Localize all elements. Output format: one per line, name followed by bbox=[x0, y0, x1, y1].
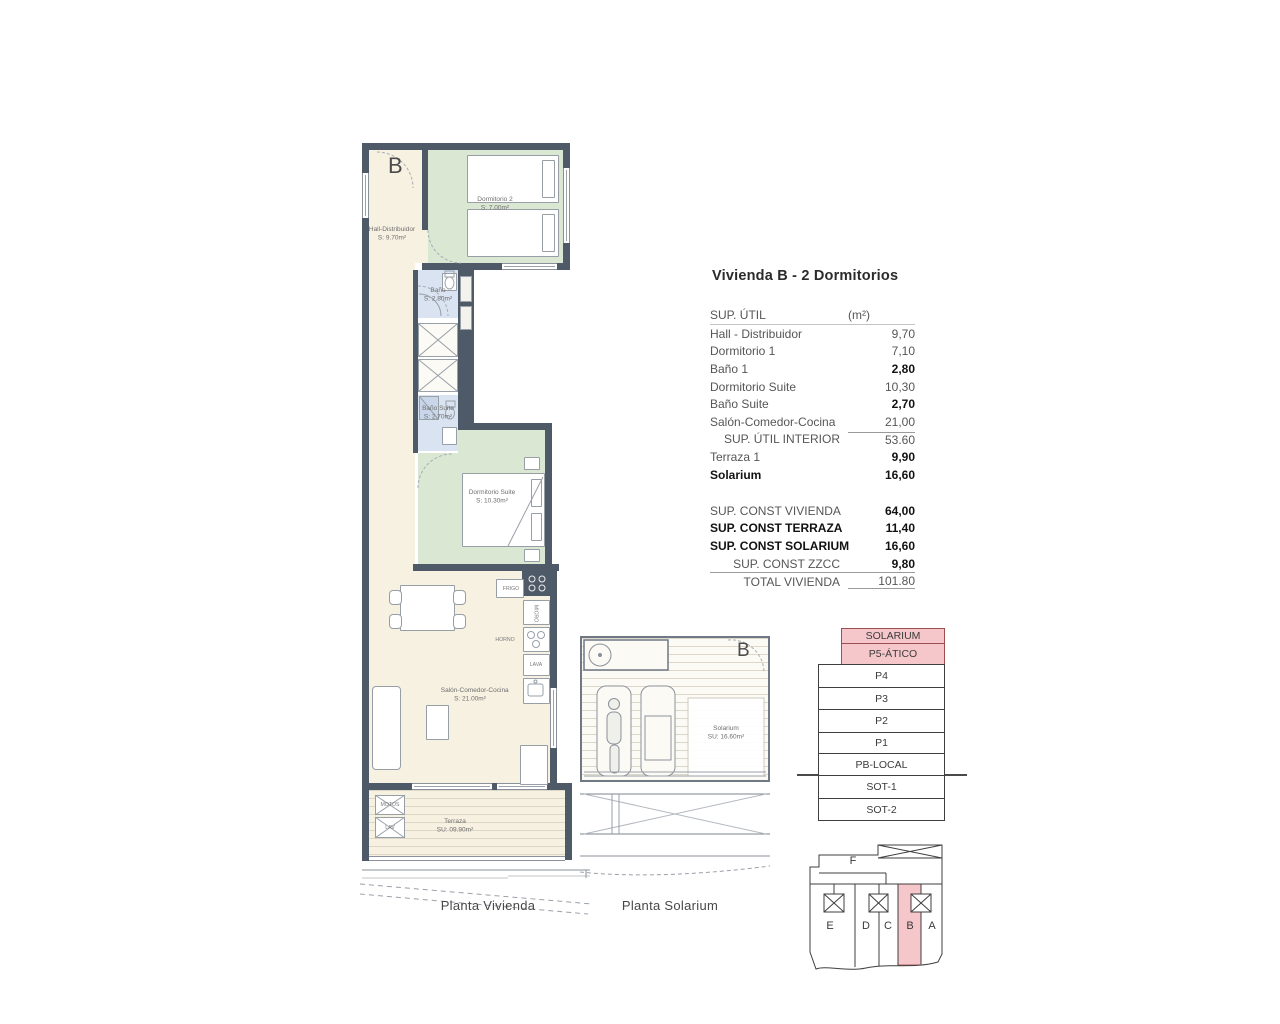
coffee-table bbox=[426, 705, 449, 740]
wall-suite-bottom bbox=[413, 564, 559, 571]
window-dorm2-bottom bbox=[502, 263, 557, 270]
label-motos: MOTOS bbox=[377, 802, 403, 808]
table-row: SUP. CONST ZZCC9,80 bbox=[710, 555, 915, 573]
room-name: Solarium bbox=[697, 724, 756, 732]
label-dormitorio-suite: Dormitorio Suite S: 10.30m² bbox=[463, 488, 522, 505]
wall-suite-right bbox=[545, 423, 552, 571]
label-lava: LAVA bbox=[523, 662, 549, 668]
room-area: SU: 16.60m² bbox=[697, 732, 756, 740]
label-salon: Salón-Comedor-Cocina S: 21.00m² bbox=[441, 686, 500, 703]
level-p4: P4 bbox=[818, 664, 945, 688]
plan-sheet: B Hall-Distribuidor S: 9.70m² Dormitorio… bbox=[0, 0, 1280, 1024]
site-key-plan bbox=[794, 842, 964, 994]
sofa bbox=[372, 686, 401, 770]
level-p3: P3 bbox=[818, 687, 945, 710]
table-row: SUP. CONST SOLARIUM16,60 bbox=[710, 537, 915, 555]
level-pb-local: PB-LOCAL bbox=[818, 753, 945, 776]
site-unit-c: C bbox=[880, 920, 896, 932]
room-dormitorio-suite-floor-upper bbox=[458, 430, 545, 453]
floor-plan-vivienda: B Hall-Distribuidor S: 9.70m² Dormitorio… bbox=[362, 143, 574, 865]
suite-bath-sink bbox=[442, 427, 457, 445]
kitchen-counter-corner bbox=[522, 571, 557, 596]
tv-bench bbox=[520, 745, 548, 785]
level-solarium: SOLARIUM bbox=[841, 628, 945, 644]
site-unit-f: F bbox=[845, 855, 861, 867]
room-name: Baño Suite bbox=[409, 404, 468, 412]
label-bano: Baño S: 2.80m² bbox=[409, 286, 468, 303]
table-row-total: TOTAL VIVIENDA101.80 bbox=[710, 572, 915, 590]
shaft-2 bbox=[460, 306, 472, 330]
window-hall-niche bbox=[362, 173, 369, 218]
solarium-structure-elevation bbox=[578, 786, 772, 880]
label-terraza: Terraza SU: 09.90m² bbox=[426, 817, 485, 834]
site-unit-b: B bbox=[902, 920, 918, 932]
room-area: S: 2.80m² bbox=[409, 294, 468, 302]
nightstand-2 bbox=[524, 549, 540, 562]
label-micro: MICRO bbox=[533, 601, 539, 627]
label-dormitorio2: Dormitorio 2 S: 7.00m² bbox=[466, 195, 525, 212]
window-terrace-door-1 bbox=[412, 783, 492, 790]
site-unit-e: E bbox=[822, 920, 838, 932]
label-lav: LAV bbox=[377, 825, 403, 831]
room-name: Hall-Distribuidor bbox=[363, 225, 422, 233]
nightstand-1 bbox=[524, 457, 540, 470]
const-table: SUP. CONST VIVIENDA64,00 SUP. CONST TERR… bbox=[710, 502, 915, 590]
site-unit-a: A bbox=[924, 920, 940, 932]
level-sot-1: SOT-1 bbox=[818, 775, 945, 799]
room-area: S: 7.00m² bbox=[466, 203, 525, 211]
chair bbox=[453, 590, 466, 605]
label-solarium: Solarium SU: 16.60m² bbox=[697, 724, 756, 741]
area-table: SUP. ÚTIL (m²) Hall - Distribuidor9,70 D… bbox=[710, 306, 915, 483]
table-row: Solarium16,60 bbox=[710, 466, 915, 484]
label-bano-suite: Baño Suite S: 2.70m² bbox=[409, 404, 468, 421]
pillow bbox=[531, 513, 542, 541]
caption-planta-solarium: Planta Solarium bbox=[575, 898, 765, 913]
table-row: Dormitorio 17,10 bbox=[710, 343, 915, 361]
room-area: SU: 09.90m² bbox=[426, 825, 485, 833]
table-row: Terraza 19,90 bbox=[710, 448, 915, 466]
room-area: S: 9.70m² bbox=[363, 233, 422, 241]
wall-dorm2-left bbox=[422, 150, 428, 230]
site-unit-d: D bbox=[858, 920, 874, 932]
room-name: Salón-Comedor-Cocina bbox=[441, 686, 500, 694]
dining-table bbox=[400, 585, 455, 631]
chair bbox=[453, 614, 466, 629]
wall-suite-top bbox=[474, 423, 552, 430]
table-row: SUP. CONST TERRAZA11,40 bbox=[710, 520, 915, 538]
room-area: S: 10.30m² bbox=[463, 496, 522, 504]
unit-letter-vivienda: B bbox=[388, 153, 403, 179]
wall-living-right bbox=[550, 571, 557, 790]
hob-oven bbox=[523, 627, 550, 652]
level-stack: SOLARIUM P5-ÁTICO P4 P3 P2 P1 PB-LOCAL S… bbox=[797, 626, 967, 826]
bed-suite bbox=[462, 473, 545, 547]
bed-dorm2-2 bbox=[467, 209, 559, 257]
pillow bbox=[542, 214, 555, 252]
label-hall: Hall-Distribuidor S: 9.70m² bbox=[363, 225, 422, 242]
room-area: S: 21.00m² bbox=[441, 694, 500, 702]
table-row: Dormitorio Suite10,30 bbox=[710, 378, 915, 396]
caption-planta-vivienda: Planta Vivienda bbox=[393, 898, 583, 913]
kitchen-sink bbox=[523, 678, 550, 704]
table-row: Salón-Comedor-Cocina21,00 bbox=[710, 413, 915, 431]
level-p5-atico: P5-ÁTICO bbox=[841, 643, 945, 665]
room-name: Terraza bbox=[426, 817, 485, 825]
pillow bbox=[542, 160, 555, 198]
sheet-title: Vivienda B - 2 Dormitorios bbox=[712, 268, 898, 284]
area-table-header: SUP. ÚTIL (m²) bbox=[710, 306, 915, 325]
label-frigo: FRIGO bbox=[498, 586, 524, 592]
chair bbox=[389, 590, 402, 605]
level-p2: P2 bbox=[818, 709, 945, 733]
room-hall-floor bbox=[369, 150, 415, 571]
wall-left bbox=[362, 143, 369, 861]
level-sot-2: SOT-2 bbox=[818, 798, 945, 821]
floor-plan-solarium: B Solarium SU: 16.60m² bbox=[580, 636, 770, 782]
pillow bbox=[531, 479, 542, 507]
site-sketch-lines-vivienda bbox=[358, 862, 594, 922]
label-horno: HORNO bbox=[492, 637, 518, 643]
window-living-right bbox=[550, 688, 557, 748]
table-row: Baño 12,80 bbox=[710, 360, 915, 378]
room-name: Dormitorio 2 bbox=[466, 195, 525, 203]
chair bbox=[389, 614, 402, 629]
table-row: Hall - Distribuidor9,70 bbox=[710, 325, 915, 343]
col-unit: (m²) bbox=[844, 308, 915, 322]
unit-letter-solarium: B bbox=[737, 640, 750, 662]
table-row: Baño Suite2,70 bbox=[710, 395, 915, 413]
wall-top bbox=[362, 143, 570, 150]
terrace-railing bbox=[369, 856, 565, 861]
table-row-subtotal: SUP. ÚTIL INTERIOR53.60 bbox=[710, 431, 915, 449]
room-name: Dormitorio Suite bbox=[463, 488, 522, 496]
table-row: SUP. CONST VIVIENDA64,00 bbox=[710, 502, 915, 520]
room-area: S: 2.70m² bbox=[409, 412, 468, 420]
col-label: SUP. ÚTIL bbox=[710, 308, 844, 322]
level-p1: P1 bbox=[818, 732, 945, 754]
window-dorm2 bbox=[563, 168, 570, 243]
room-name: Baño bbox=[409, 286, 468, 294]
wall-terrace-right bbox=[565, 790, 572, 860]
